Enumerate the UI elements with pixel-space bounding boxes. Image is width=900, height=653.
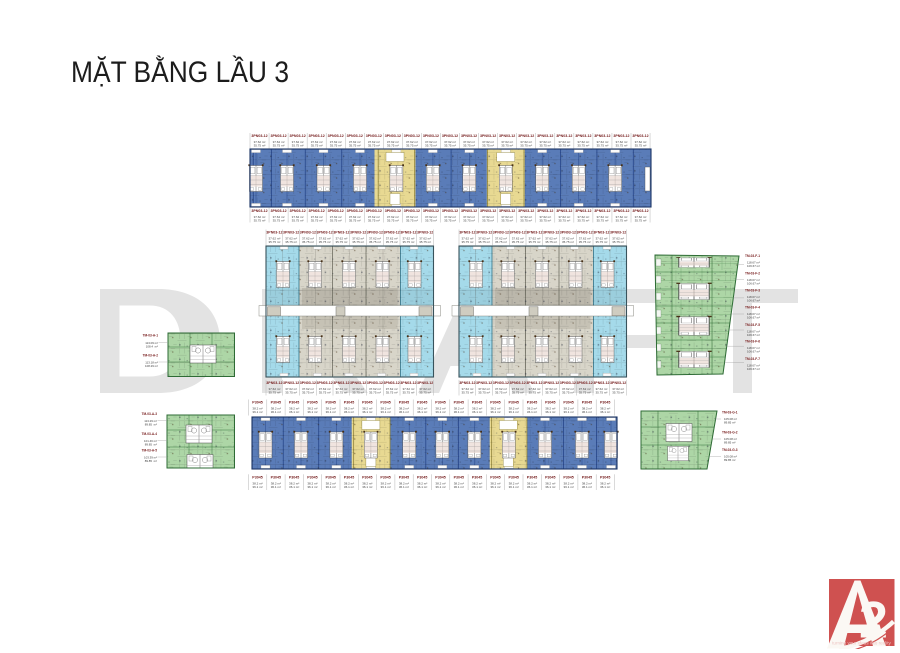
svg-text:MẶT BẰNG LẦU 3: MẶT BẰNG LẦU 3 [71, 55, 289, 89]
svg-text:TM-03-F-4: TM-03-F-4 [745, 306, 760, 310]
svg-text:TM-03-G-2: TM-03-G-2 [722, 431, 738, 435]
svg-text:106.67 m²: 106.67 m² [747, 349, 760, 353]
svg-text:TM-03-F-7: TM-03-F-7 [745, 357, 760, 361]
svg-text:turning your ideas into realit: turning your ideas into reality [832, 641, 891, 646]
svg-text:89.85 m²: 89.85 m² [724, 440, 735, 444]
svg-text:TM-03-G-1: TM-03-G-1 [722, 411, 738, 415]
svg-text:89.85 m²: 89.85 m² [724, 458, 735, 462]
svg-text:TM-03-A-3: TM-03-A-3 [142, 412, 158, 416]
svg-text:89.85 m²: 89.85 m² [145, 442, 157, 446]
svg-text:TM-03-A-5: TM-03-A-5 [142, 449, 158, 453]
svg-text:TM-03-F-1: TM-03-F-1 [745, 254, 760, 258]
svg-text:TM-03-F-3: TM-03-F-3 [745, 289, 760, 293]
svg-text:TM-03-A-1: TM-03-A-1 [143, 334, 159, 338]
svg-text:TM-03-F-5: TM-03-F-5 [745, 323, 760, 327]
svg-text:106.67 m²: 106.67 m² [747, 315, 760, 319]
svg-text:89.85 m²: 89.85 m² [724, 420, 735, 424]
svg-text:89.85 m²: 89.85 m² [145, 459, 157, 463]
svg-text:106.67 m²: 106.67 m² [747, 333, 760, 337]
svg-text:TM-03-A-2: TM-03-A-2 [143, 354, 159, 358]
svg-text:106.67 m²: 106.67 m² [747, 367, 760, 371]
svg-text:106.67 m²: 106.67 m² [747, 264, 760, 268]
svg-text:108.29 m²: 108.29 m² [145, 364, 158, 368]
svg-text:106.67 m²: 106.67 m² [747, 298, 760, 302]
svg-text:89.85 m²: 89.85 m² [145, 422, 157, 426]
svg-text:TM-03-G-3: TM-03-G-3 [722, 448, 738, 452]
svg-text:TM-03-A-4: TM-03-A-4 [142, 432, 158, 436]
svg-text:TM-03-F-6: TM-03-F-6 [745, 340, 760, 344]
svg-text:106.67 m²: 106.67 m² [747, 281, 760, 285]
svg-text:TM-03-F-2: TM-03-F-2 [745, 272, 760, 276]
svg-text:108.4 m²: 108.4 m² [146, 344, 158, 348]
